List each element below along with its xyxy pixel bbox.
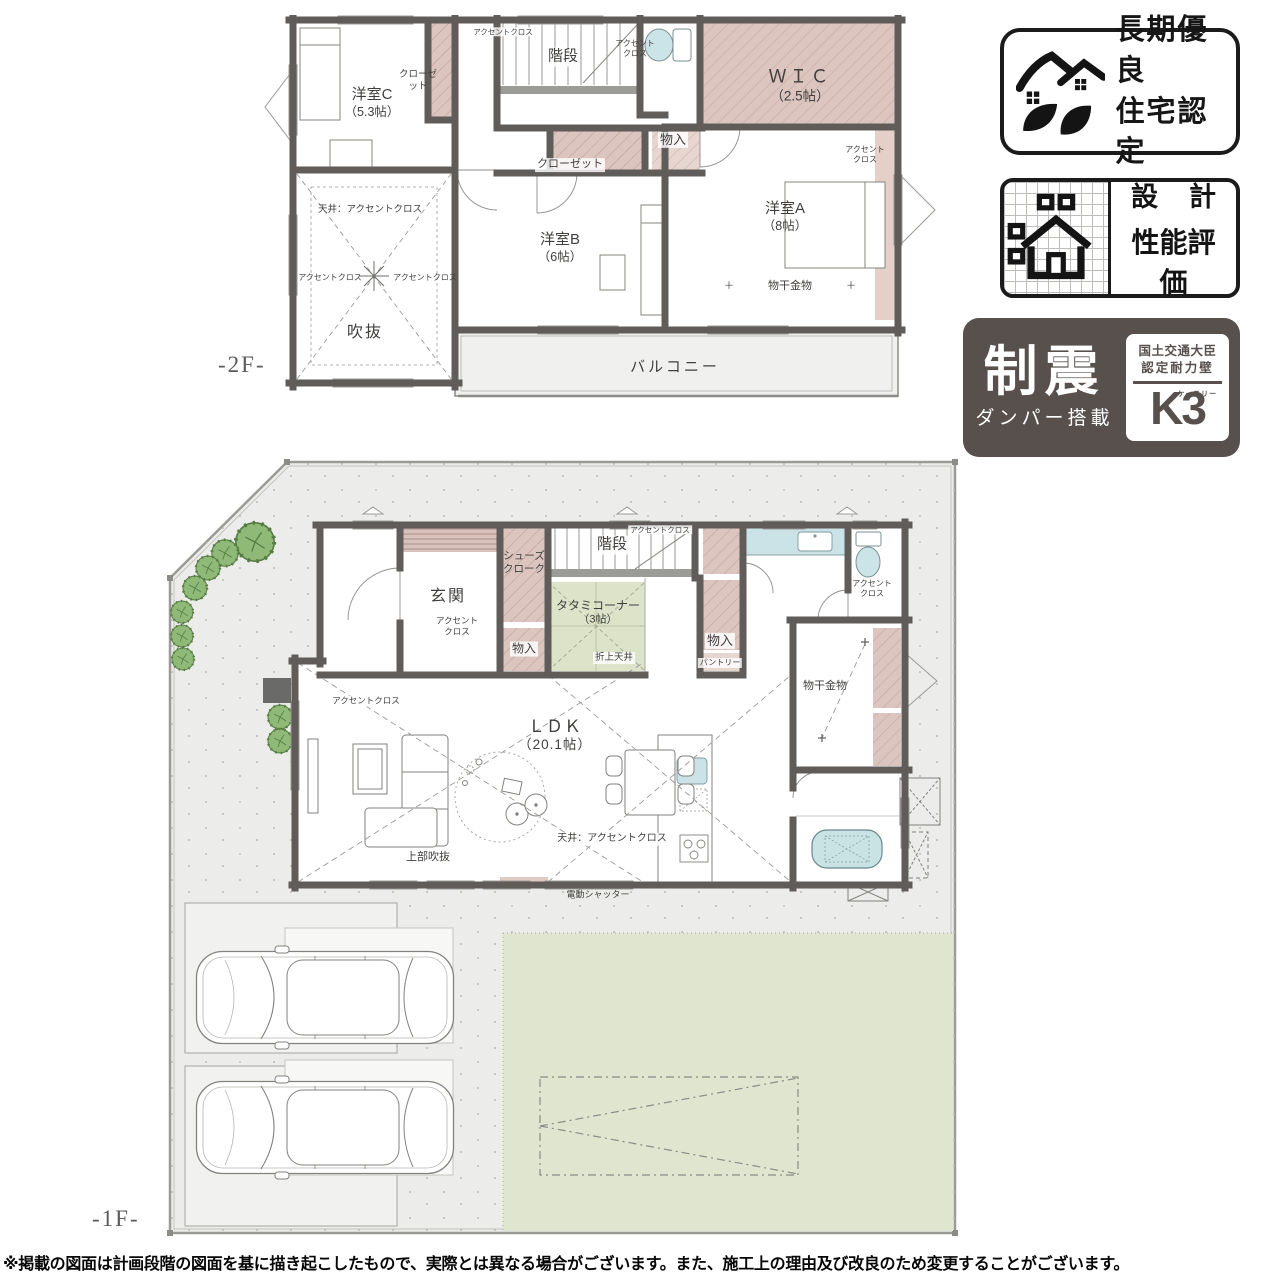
car-icon — [197, 1076, 454, 1179]
badge-choki-line2: 住宅認定 — [1115, 92, 1236, 173]
badge-seishin-sub: ダンパー搭載 — [963, 403, 1126, 430]
floorplan-sheet: 洋室C （5.3帖） クローゼ ット アクセントクロス 階段 アクセント クロス… — [0, 0, 1280, 1280]
label-monohoshi-1f: 物干金物 — [803, 680, 847, 694]
label-accent-cloth-yoshitsu-a: アクセント クロス — [845, 145, 885, 165]
toilet-icon-1f — [856, 532, 881, 577]
badge-choki-yuryo: 長期優良 住宅認定 — [1000, 28, 1240, 155]
room-label-yoshitsu-c: 洋室C （5.3帖） — [345, 86, 400, 120]
room-label-ldk: ＬＤＫ （20.1帖） — [518, 716, 592, 754]
label-accent-right-2f: アクセントクロス — [393, 273, 457, 283]
k3-kana: ケースリー — [1178, 391, 1218, 398]
house-leaves-icon — [1016, 44, 1105, 139]
badge-sekkei-hyoka: 設 計 性能評価 — [1000, 178, 1240, 298]
badge-sekkei-word1: 設 — [1131, 178, 1158, 214]
disclaimer-text: ※掲載の図面は計画段階の図面を基に描き起こしたもので、実際とは異なる場合がござい… — [3, 1250, 1279, 1274]
label-accent-cloth-toilet-2f: アクセント クロス — [615, 39, 655, 59]
room-label-wic: ＷＩＣ （2.5帖） — [769, 65, 832, 104]
room-label-closet-b: クローゼット — [535, 158, 605, 172]
label-ceiling-accent-2f: 天井：アクセントクロス — [318, 204, 422, 216]
label-accent-toilet-1f: アクセント クロス — [852, 579, 892, 599]
room-label-pantry: パントリー — [698, 658, 742, 668]
room-label-tatami: タタミコーナー （3帖） — [556, 599, 640, 628]
label-electric-shutter: 電動シャッター — [566, 889, 629, 900]
k3-cert-line1: 国土交通大臣 — [1131, 343, 1224, 360]
label-accent-genkan: アクセント クロス — [436, 615, 478, 636]
blueprint-house-icon — [1004, 182, 1108, 294]
badge-seishin-main: 制震 — [963, 345, 1126, 399]
stove-icon — [680, 835, 708, 862]
room-label-closet-c: クローゼ ット — [399, 69, 437, 93]
room-label-genkan: 玄関 — [430, 587, 466, 607]
blueprint-grid — [1004, 182, 1111, 294]
room-label-shoes-cloak: シューズ クローク — [503, 550, 545, 576]
floor-label-1f: -1F- — [92, 1206, 140, 1232]
k3-cert-line2: 認定耐力壁 — [1131, 360, 1224, 377]
room-label-balcony: バルコニー — [630, 359, 720, 378]
floorplan-1f-drawing — [165, 458, 965, 1238]
label-accent-cloth-stairs-2f: アクセントクロス — [471, 27, 535, 36]
room-label-monoire-2f: 物入 — [658, 132, 688, 148]
badge-sekkei-line2: 性能評価 — [1119, 221, 1228, 298]
label-accent-left-2f: アクセントクロス — [298, 273, 362, 283]
floorplan-1f: 玄関 アクセント クロス シューズ クローク 階段 アクセントクロス タタミコー… — [165, 458, 965, 1238]
room-label-yoshitsu-a: 洋室A （8帖） — [763, 200, 807, 234]
label-oriage-tenjo: 折上天井 — [593, 652, 635, 664]
label-accent-living: アクセントクロス — [330, 696, 402, 707]
bathroom — [796, 773, 905, 882]
room-label-monoire-right: 物入 — [705, 633, 735, 649]
label-monohoshi-2f: ＋ 物干金物 ＋ — [724, 280, 856, 294]
room-label-fukinuke: 吹抜 — [347, 323, 383, 343]
room-label-monoire-left: 物入 — [510, 642, 538, 657]
label-ceiling-accent-1f: 天井：アクセントクロス — [555, 833, 669, 846]
car-icon — [197, 946, 454, 1049]
badge-choki-line1: 長期優良 — [1115, 10, 1236, 91]
k3-cert-box: 国土交通大臣 認定耐力壁 K3 ケースリー — [1126, 334, 1229, 440]
room-label-yoshitsu-b: 洋室B （6帖） — [538, 231, 582, 265]
k3-logo: K3 ケースリー — [1131, 384, 1224, 432]
badge-seishin-damper: 制震 ダンパー搭載 国土交通大臣 認定耐力壁 K3 ケースリー — [963, 318, 1240, 457]
badge-sekkei-word2: 計 — [1189, 178, 1216, 214]
label-accent-stairs-1f: アクセントクロス — [628, 525, 692, 534]
vanity-counter — [746, 528, 845, 555]
lawn — [503, 933, 953, 1231]
floorplan-2f: 洋室C （5.3帖） クローゼ ット アクセントクロス 階段 アクセント クロス… — [253, 15, 943, 415]
room-label-stairs-2f: 階段 — [546, 48, 580, 67]
floor-label-2f: -2F- — [218, 352, 266, 378]
label-upper-void: 上部吹抜 — [404, 851, 452, 865]
porch-step — [263, 678, 291, 703]
room-label-stairs-1f: 階段 — [595, 536, 629, 555]
